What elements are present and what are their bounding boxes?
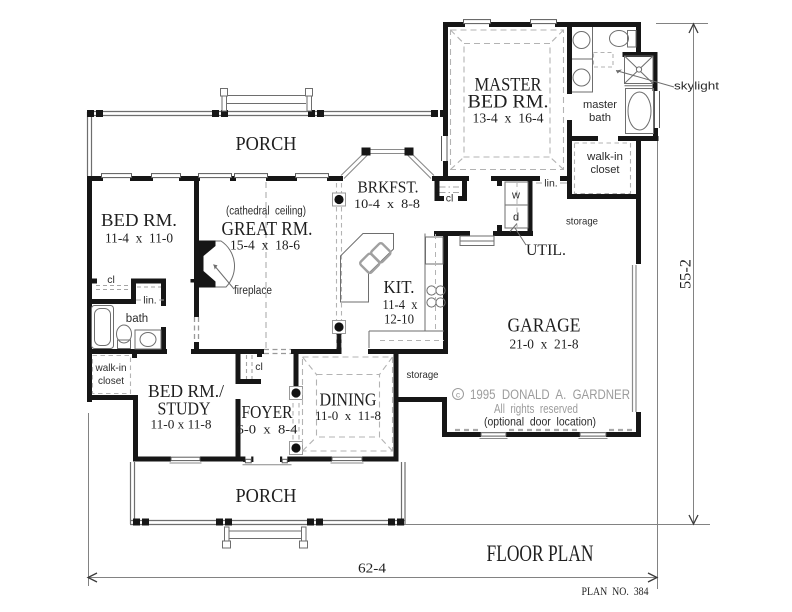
svg-text:cl: cl [255, 361, 263, 373]
svg-text:(cathedral ceiling): (cathedral ceiling) [226, 206, 306, 218]
svg-text:11-0 x 11-8: 11-0 x 11-8 [315, 408, 381, 423]
svg-text:lin.: lin. [143, 295, 156, 307]
svg-text:lin.: lin. [544, 178, 557, 190]
svg-text:BED RM.: BED RM. [101, 210, 177, 230]
svg-text:DINING: DINING [320, 390, 377, 410]
svg-text:13-4 x 16-4: 13-4 x 16-4 [473, 111, 544, 126]
svg-text:bath: bath [589, 112, 611, 124]
svg-text:6-0 x 8-4: 6-0 x 8-4 [237, 422, 299, 437]
svg-text:UTIL.: UTIL. [526, 242, 566, 259]
svg-text:GARAGE: GARAGE [508, 316, 581, 337]
svg-text:storage: storage [407, 369, 439, 381]
svg-text:10-4 x 8-8: 10-4 x 8-8 [354, 196, 420, 211]
svg-text:11-4 x: 11-4 x [383, 297, 418, 312]
svg-text:storage: storage [566, 216, 598, 228]
svg-text:11-0 x 11-8: 11-0 x 11-8 [151, 417, 212, 432]
svg-text:bath: bath [126, 313, 148, 325]
svg-text:11-4 x 11-0: 11-4 x 11-0 [105, 231, 173, 246]
svg-text:BED RM.: BED RM. [468, 92, 549, 113]
svg-text:PORCH: PORCH [236, 133, 297, 155]
svg-text:BRKFST.: BRKFST. [358, 178, 419, 197]
svg-text:(optional door location): (optional door location) [484, 415, 596, 429]
svg-text:closet: closet [591, 164, 620, 176]
svg-text:12-10: 12-10 [384, 312, 414, 327]
svg-text:PLAN NO. 384: PLAN NO. 384 [582, 584, 649, 598]
svg-text:FOYER: FOYER [242, 402, 293, 422]
svg-text:STUDY: STUDY [158, 399, 211, 419]
svg-text:walk-in: walk-in [586, 151, 623, 163]
svg-text:closet: closet [98, 375, 124, 387]
svg-text:21-0 x 21-8: 21-0 x 21-8 [510, 337, 579, 352]
svg-text:w: w [511, 190, 520, 202]
svg-text:55-2: 55-2 [678, 259, 695, 289]
svg-text:cl: cl [446, 193, 454, 205]
svg-text:walk-in: walk-in [95, 362, 127, 374]
svg-text:cl: cl [107, 274, 115, 286]
svg-text:skylight: skylight [674, 81, 719, 93]
svg-text:PORCH: PORCH [236, 485, 297, 507]
svg-text:1995 DONALD A. GARDNER: 1995 DONALD A. GARDNER [470, 387, 630, 402]
svg-text:FLOOR PLAN: FLOOR PLAN [487, 541, 594, 566]
svg-text:KIT.: KIT. [384, 277, 415, 297]
svg-text:master: master [583, 99, 617, 111]
svg-text:15-4 x 18-6: 15-4 x 18-6 [230, 238, 300, 253]
svg-text:d: d [513, 212, 519, 224]
svg-text:62-4: 62-4 [358, 562, 386, 577]
